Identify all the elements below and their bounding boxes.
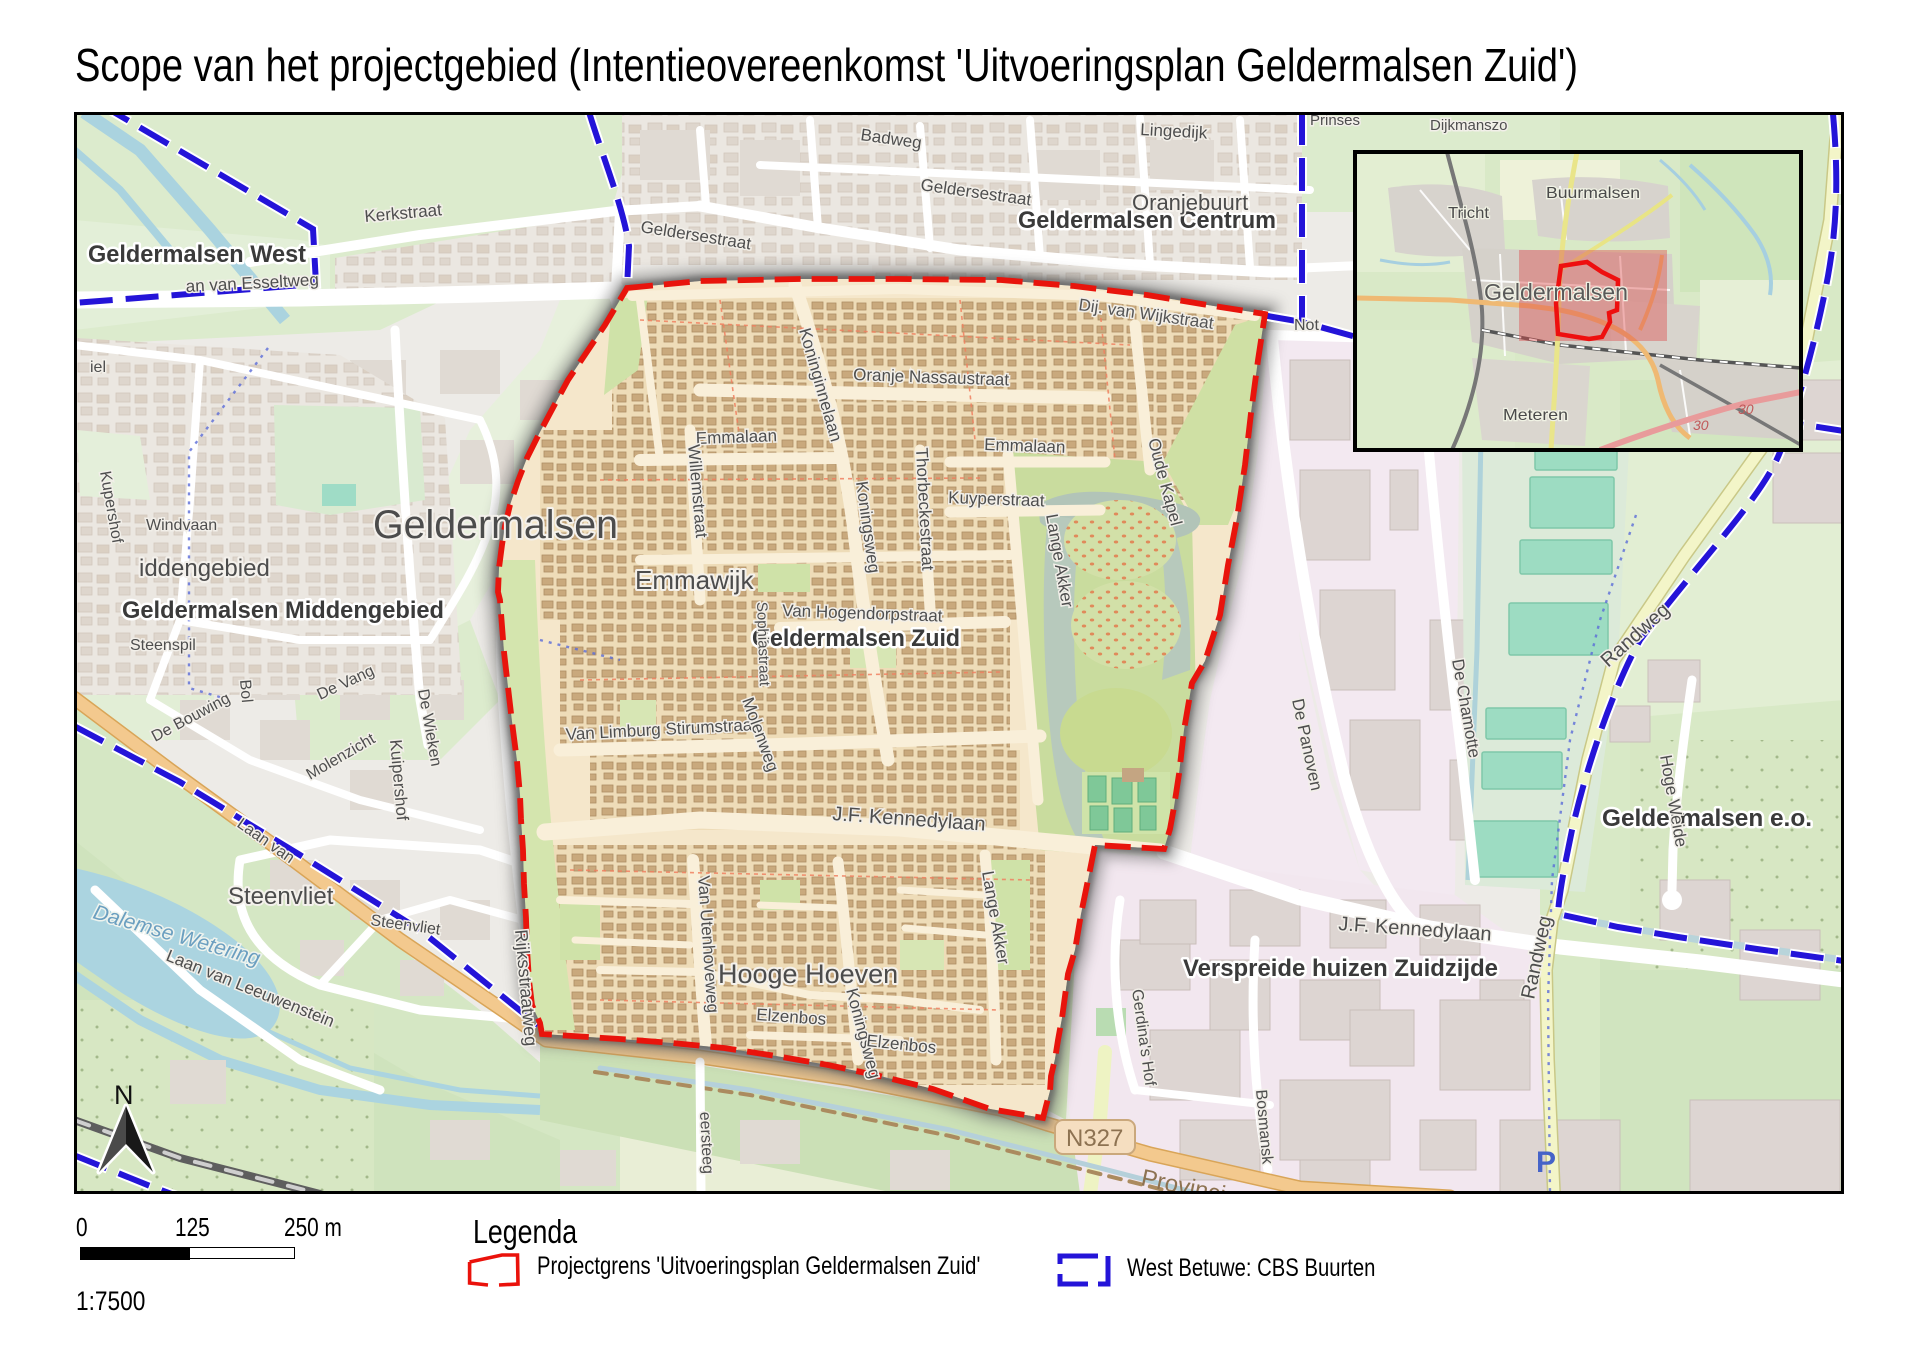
svg-text:Oranjebuurt: Oranjebuurt xyxy=(1132,190,1248,215)
svg-text:30: 30 xyxy=(1693,417,1709,433)
svg-text:Geldermalsen: Geldermalsen xyxy=(1484,279,1628,305)
svg-text:Emmalaan: Emmalaan xyxy=(695,426,777,448)
svg-text:Steenspil: Steenspil xyxy=(130,637,196,654)
svg-text:Hooge Hoeven: Hooge Hoeven xyxy=(718,959,898,989)
svg-text:Verspreide huizen Zuidzijde: Verspreide huizen Zuidzijde xyxy=(1183,955,1498,982)
svg-text:iddengebied: iddengebied xyxy=(139,555,270,582)
svg-text:Geldermalsen: Geldermalsen xyxy=(373,503,618,547)
svg-text:30: 30 xyxy=(1738,401,1754,417)
svg-text:Sophiastraat: Sophiastraat xyxy=(753,602,773,688)
svg-text:iel: iel xyxy=(90,359,106,376)
svg-text:Geldermalsen e.o.: Geldermalsen e.o. xyxy=(1602,805,1812,832)
svg-text:Bol: Bol xyxy=(236,679,255,704)
svg-text:N327: N327 xyxy=(1066,1125,1123,1152)
svg-text:Emmalaan: Emmalaan xyxy=(984,435,1066,457)
svg-text:Steenvliet: Steenvliet xyxy=(228,883,334,910)
svg-text:Windvaan: Windvaan xyxy=(146,517,217,534)
svg-text:Lingedijk: Lingedijk xyxy=(1140,120,1209,143)
svg-text:Kuyperstraat: Kuyperstraat xyxy=(948,488,1045,510)
svg-text:Geldermalsen Zuid: Geldermalsen Zuid xyxy=(752,625,960,652)
svg-text:Dijkmanszo: Dijkmanszo xyxy=(1430,117,1508,134)
svg-text:Geldermalsen Middengebied: Geldermalsen Middengebied xyxy=(122,597,444,624)
svg-text:eersteeg: eersteeg xyxy=(696,1111,716,1174)
svg-text:Buurmalsen: Buurmalsen xyxy=(1546,185,1640,202)
svg-text:Meteren: Meteren xyxy=(1503,407,1568,424)
svg-text:Not: Not xyxy=(1294,317,1319,334)
svg-text:P: P xyxy=(1536,1146,1556,1179)
svg-text:Emmawijk: Emmawijk xyxy=(635,565,754,595)
svg-text:Geldermalsen West: Geldermalsen West xyxy=(88,241,306,268)
svg-text:Tricht: Tricht xyxy=(1448,205,1490,222)
